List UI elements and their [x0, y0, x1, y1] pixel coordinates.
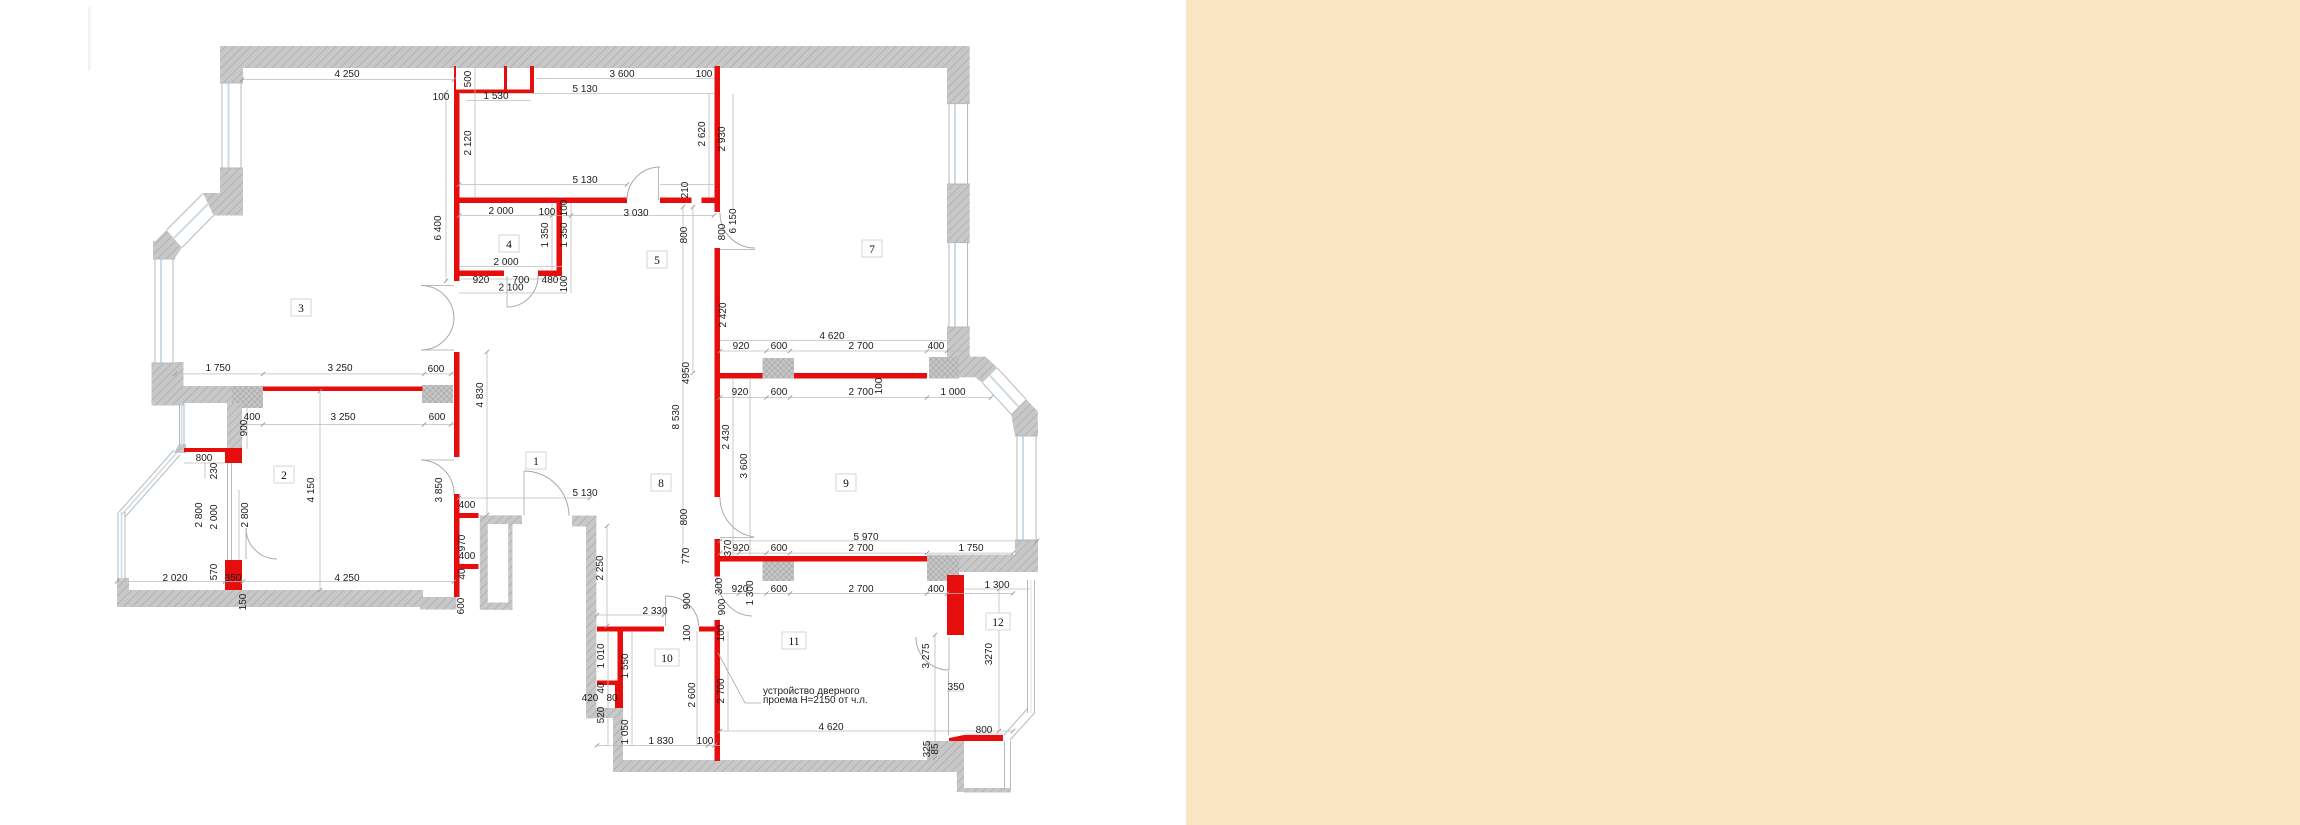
svg-text:1 300: 1 300: [984, 580, 1009, 591]
svg-text:420: 420: [582, 693, 599, 704]
svg-text:800: 800: [976, 725, 993, 736]
svg-text:3 250: 3 250: [327, 363, 352, 374]
svg-text:1 010: 1 010: [596, 643, 607, 668]
svg-text:570: 570: [209, 563, 220, 580]
svg-text:1 000: 1 000: [940, 387, 965, 398]
svg-text:3 600: 3 600: [739, 453, 750, 478]
svg-text:480: 480: [542, 275, 559, 286]
svg-text:11: 11: [788, 636, 799, 648]
svg-text:100: 100: [696, 69, 713, 80]
svg-text:100: 100: [559, 275, 570, 292]
svg-text:900: 900: [239, 419, 250, 436]
svg-text:6 400: 6 400: [433, 215, 444, 240]
svg-text:5 130: 5 130: [572, 175, 597, 186]
svg-text:2 800: 2 800: [194, 502, 205, 527]
svg-text:150: 150: [238, 593, 249, 610]
svg-text:3 030: 3 030: [623, 208, 648, 219]
svg-text:2 020: 2 020: [162, 573, 187, 584]
svg-text:520: 520: [596, 706, 607, 723]
svg-text:1 750: 1 750: [205, 363, 230, 374]
svg-text:2 700: 2 700: [848, 341, 873, 352]
svg-text:2 330: 2 330: [642, 606, 667, 617]
svg-text:400: 400: [459, 500, 476, 511]
svg-text:210: 210: [680, 181, 691, 198]
svg-text:40: 40: [457, 568, 468, 580]
svg-text:770: 770: [681, 547, 692, 564]
svg-text:400: 400: [928, 584, 945, 595]
svg-text:2 000: 2 000: [493, 257, 518, 268]
svg-text:100: 100: [697, 736, 714, 747]
svg-text:1 300: 1 300: [745, 580, 756, 605]
svg-text:920: 920: [732, 387, 749, 398]
svg-text:1 350: 1 350: [540, 222, 551, 247]
svg-text:300: 300: [714, 577, 725, 594]
svg-text:3 275: 3 275: [921, 643, 932, 668]
svg-text:1 830: 1 830: [648, 736, 673, 747]
svg-text:920: 920: [733, 543, 750, 554]
svg-text:2 800: 2 800: [240, 502, 251, 527]
svg-text:1 530: 1 530: [483, 91, 508, 102]
svg-text:600: 600: [428, 364, 445, 375]
svg-text:2 700: 2 700: [716, 678, 727, 703]
svg-text:100: 100: [559, 199, 570, 216]
svg-text:5: 5: [654, 255, 660, 267]
svg-text:600: 600: [771, 584, 788, 595]
svg-text:80: 80: [606, 693, 618, 704]
svg-text:2 250: 2 250: [595, 555, 606, 580]
svg-text:2 000: 2 000: [209, 504, 220, 529]
svg-text:500: 500: [463, 70, 474, 87]
svg-text:2 700: 2 700: [848, 543, 873, 554]
svg-text:12: 12: [992, 617, 1004, 629]
svg-text:2: 2: [281, 470, 287, 482]
svg-text:2 600: 2 600: [687, 682, 698, 707]
svg-text:900: 900: [682, 592, 693, 609]
svg-text:1 350: 1 350: [559, 222, 570, 247]
svg-text:100: 100: [874, 377, 885, 394]
svg-text:2 100: 2 100: [498, 283, 523, 294]
svg-text:100: 100: [433, 92, 450, 103]
svg-text:350: 350: [948, 682, 965, 693]
svg-text:800: 800: [679, 508, 690, 525]
svg-text:3 850: 3 850: [434, 477, 445, 502]
svg-text:100: 100: [716, 624, 727, 641]
svg-text:5 130: 5 130: [572, 488, 597, 499]
svg-text:4 830: 4 830: [475, 382, 486, 407]
svg-text:400: 400: [928, 341, 945, 352]
svg-text:350: 350: [225, 573, 242, 584]
svg-text:проема Н=2150 от ч.л.: проема Н=2150 от ч.л.: [763, 695, 868, 706]
svg-text:2 000: 2 000: [488, 206, 513, 217]
svg-text:1 750: 1 750: [958, 543, 983, 554]
svg-text:800: 800: [717, 223, 728, 240]
svg-text:370: 370: [723, 539, 734, 556]
svg-text:970: 970: [457, 534, 468, 551]
svg-text:920: 920: [473, 275, 490, 286]
svg-text:900: 900: [717, 598, 728, 615]
svg-text:8: 8: [658, 478, 664, 490]
svg-text:600: 600: [456, 597, 467, 614]
svg-text:2 120: 2 120: [463, 130, 474, 155]
svg-text:230: 230: [209, 462, 220, 479]
svg-text:85: 85: [930, 743, 941, 755]
svg-text:7: 7: [869, 244, 875, 256]
svg-text:920: 920: [733, 341, 750, 352]
svg-text:100: 100: [539, 207, 556, 218]
svg-text:600: 600: [771, 341, 788, 352]
svg-text:3270: 3270: [984, 642, 995, 665]
svg-text:8 530: 8 530: [671, 404, 682, 429]
svg-text:9: 9: [843, 478, 849, 490]
svg-text:800: 800: [679, 226, 690, 243]
svg-text:4 250: 4 250: [334, 573, 359, 584]
svg-text:600: 600: [771, 387, 788, 398]
svg-text:1 050: 1 050: [620, 719, 631, 744]
svg-text:4 620: 4 620: [818, 722, 843, 733]
svg-text:3 250: 3 250: [330, 412, 355, 423]
svg-text:2 700: 2 700: [848, 387, 873, 398]
svg-text:4950: 4950: [681, 361, 692, 384]
svg-text:400: 400: [459, 551, 476, 562]
svg-text:5 130: 5 130: [572, 84, 597, 95]
svg-text:4 150: 4 150: [306, 477, 317, 502]
svg-text:40: 40: [596, 682, 607, 694]
svg-text:600: 600: [771, 543, 788, 554]
svg-text:4 620: 4 620: [819, 331, 844, 342]
svg-text:2 420: 2 420: [718, 302, 729, 327]
svg-text:5 970: 5 970: [853, 532, 878, 543]
svg-text:2 930: 2 930: [717, 126, 728, 151]
svg-text:100: 100: [682, 624, 693, 641]
svg-text:3: 3: [298, 303, 304, 315]
svg-text:6 150: 6 150: [728, 208, 739, 233]
svg-text:2 700: 2 700: [848, 584, 873, 595]
svg-text:800: 800: [196, 453, 213, 464]
svg-text:4: 4: [506, 239, 512, 251]
svg-text:2 620: 2 620: [697, 121, 708, 146]
svg-text:4 250: 4 250: [334, 69, 359, 80]
svg-text:10: 10: [661, 653, 673, 665]
svg-text:2 430: 2 430: [721, 424, 732, 449]
svg-text:1 550: 1 550: [620, 653, 631, 678]
svg-text:3 600: 3 600: [609, 69, 634, 80]
svg-text:600: 600: [429, 412, 446, 423]
svg-text:1: 1: [533, 456, 539, 468]
